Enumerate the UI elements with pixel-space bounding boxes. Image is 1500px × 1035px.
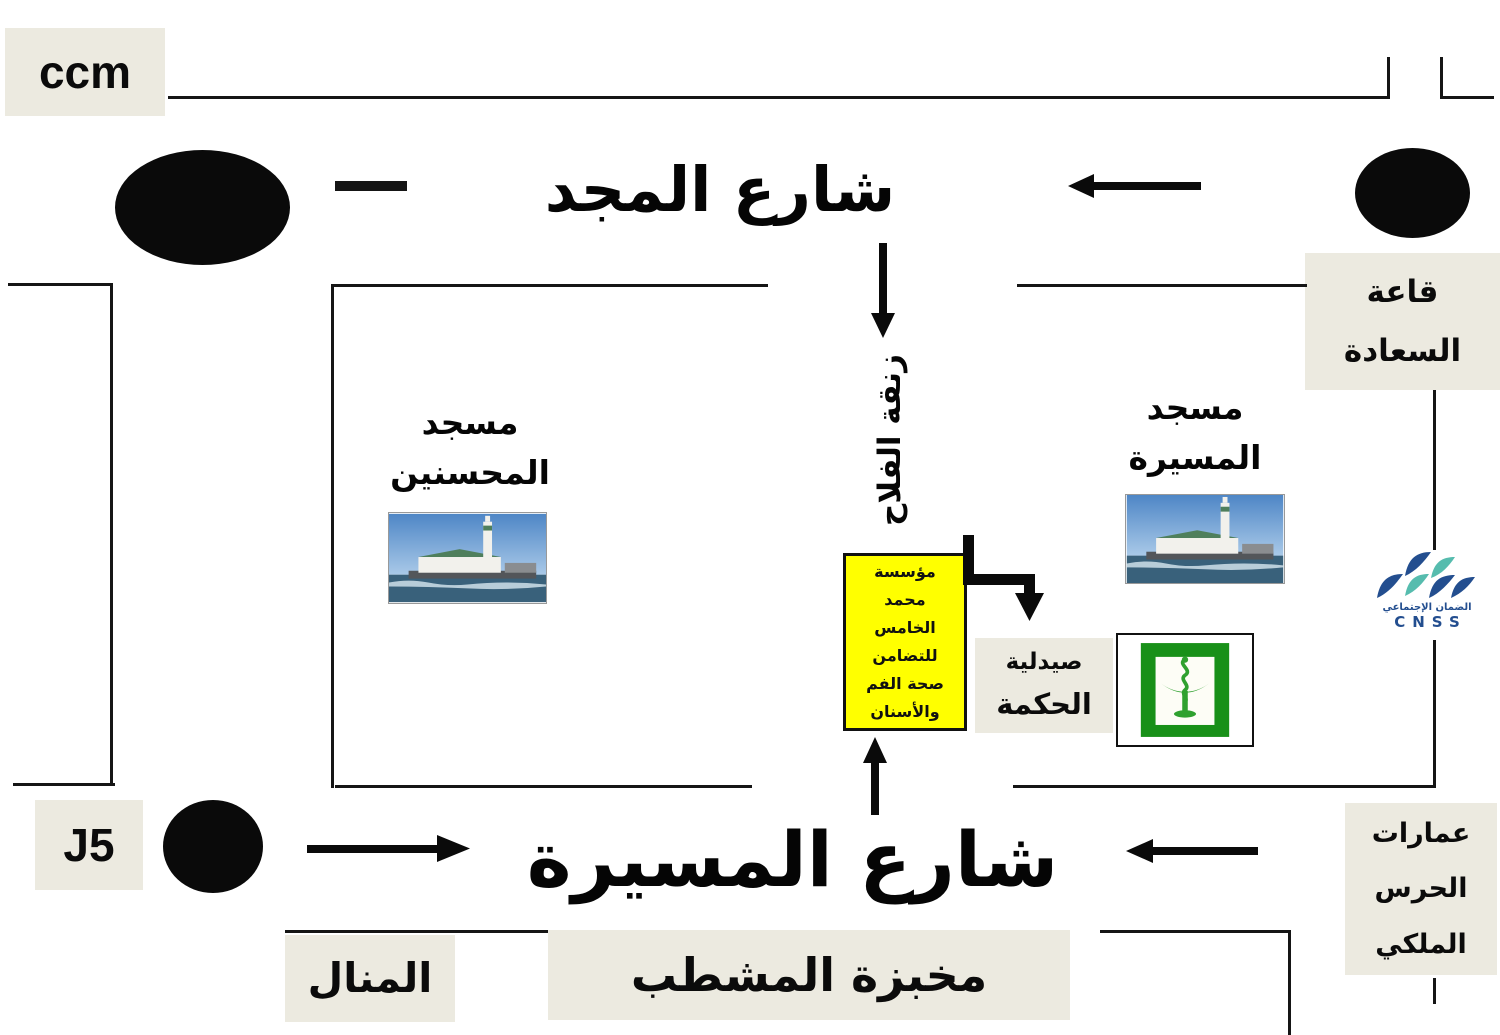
foundation-line6: والأسنان (870, 698, 939, 726)
cnss-logo: الضمان الإجتماعي CNSS (1368, 550, 1486, 640)
foundation-line5: صحة الفم (866, 670, 944, 698)
central-block-top (331, 284, 768, 287)
bakery-text: مخبزة المشطب (631, 944, 987, 1006)
saada-hall-line1: قاعة (1367, 263, 1439, 322)
roundabout-top-left (115, 150, 290, 265)
neighborhood-map: ccm شارع المجد قاعة السعادة مسجد المحسني… (0, 0, 1500, 1035)
central-block-left (331, 284, 334, 788)
massira-mosque-line1: مسجد (1095, 383, 1295, 433)
right-block-top (1017, 284, 1307, 287)
arrow-elbow-to-pharmacy (960, 535, 1065, 627)
top-road-line-end (1440, 96, 1494, 99)
guard-line1: عمارات (1372, 806, 1471, 861)
bottom-road-line-right (1100, 930, 1290, 933)
mosque-photo-mohsinin (388, 512, 547, 604)
arrow-east-massira (307, 834, 471, 863)
foundation-line1: مؤسسة (874, 558, 936, 586)
roundabout-bottom-left (163, 800, 263, 893)
ccm-label: ccm (5, 28, 165, 116)
bakery-label: مخبزة المشطب (548, 930, 1070, 1020)
top-road-line (168, 96, 1389, 99)
foundation-line2: محمد (884, 586, 925, 614)
guard-line3: الملكي (1375, 917, 1467, 972)
saada-hall-label: قاعة السعادة (1305, 253, 1500, 390)
j5-text: J5 (63, 814, 114, 876)
arrow-west-majd (1068, 172, 1203, 200)
mohsinin-mosque-line2: المحسنين (370, 448, 570, 498)
top-road-tick-left (1387, 57, 1390, 99)
cnss-arabic-text: الضمان الإجتماعي (1382, 603, 1471, 613)
bottom-block-left-edge (1288, 930, 1291, 1035)
guard-buildings-label: عمارات الحرس الملكي (1345, 803, 1497, 975)
falah-alley-name: زنقة الفلاح (870, 350, 910, 530)
cnss-latin-text: CNSS (1394, 613, 1467, 631)
massira-mosque-line2: المسيرة (1095, 433, 1295, 483)
left-block-bottom (13, 783, 115, 786)
roundabout-top-right (1355, 148, 1470, 238)
pharmacy-logo (1116, 633, 1254, 747)
pharmacy-label: صيدلية الحكمة (975, 638, 1113, 733)
right-block-bottom (1013, 785, 1436, 788)
arrow-down-falah (869, 243, 897, 339)
road-dash (335, 181, 407, 191)
bottom-road-line-left (285, 930, 580, 933)
foundation-line4: للتضامن (872, 642, 937, 670)
massira-mosque-label: مسجد المسيرة (1095, 383, 1295, 483)
left-block-right (110, 283, 113, 785)
guard-road-tick (1433, 978, 1436, 1004)
foundation-line3: الخامس (874, 614, 936, 642)
manal-text: المنال (308, 951, 433, 1006)
foundation-box: مؤسسة محمد الخامس للتضامن صحة الفم والأس… (843, 553, 967, 731)
majd-street-name: شارع المجد (510, 142, 930, 237)
top-road-tick-right (1440, 57, 1443, 99)
ccm-text: ccm (39, 41, 131, 103)
left-block-top (8, 283, 112, 286)
mohsinin-mosque-label: مسجد المحسنين (370, 398, 570, 498)
massira-street-name: شارع المسيرة (495, 800, 1090, 920)
pharmacy-cup-snake-icon (1139, 641, 1231, 739)
guard-line2: الحرس (1375, 861, 1468, 916)
j5-label: J5 (35, 800, 143, 890)
arrow-west-massira (1126, 837, 1258, 865)
pharmacy-line2: الحكمة (996, 681, 1092, 727)
cnss-sails-icon (1375, 550, 1479, 602)
mohsinin-mosque-line1: مسجد (370, 398, 570, 448)
manal-label: المنال (285, 935, 455, 1022)
pharmacy-line1: صيدلية (1006, 644, 1083, 681)
saada-hall-line2: السعادة (1344, 322, 1461, 381)
central-block-bottom (335, 785, 752, 788)
mosque-photo-massira (1125, 494, 1285, 584)
